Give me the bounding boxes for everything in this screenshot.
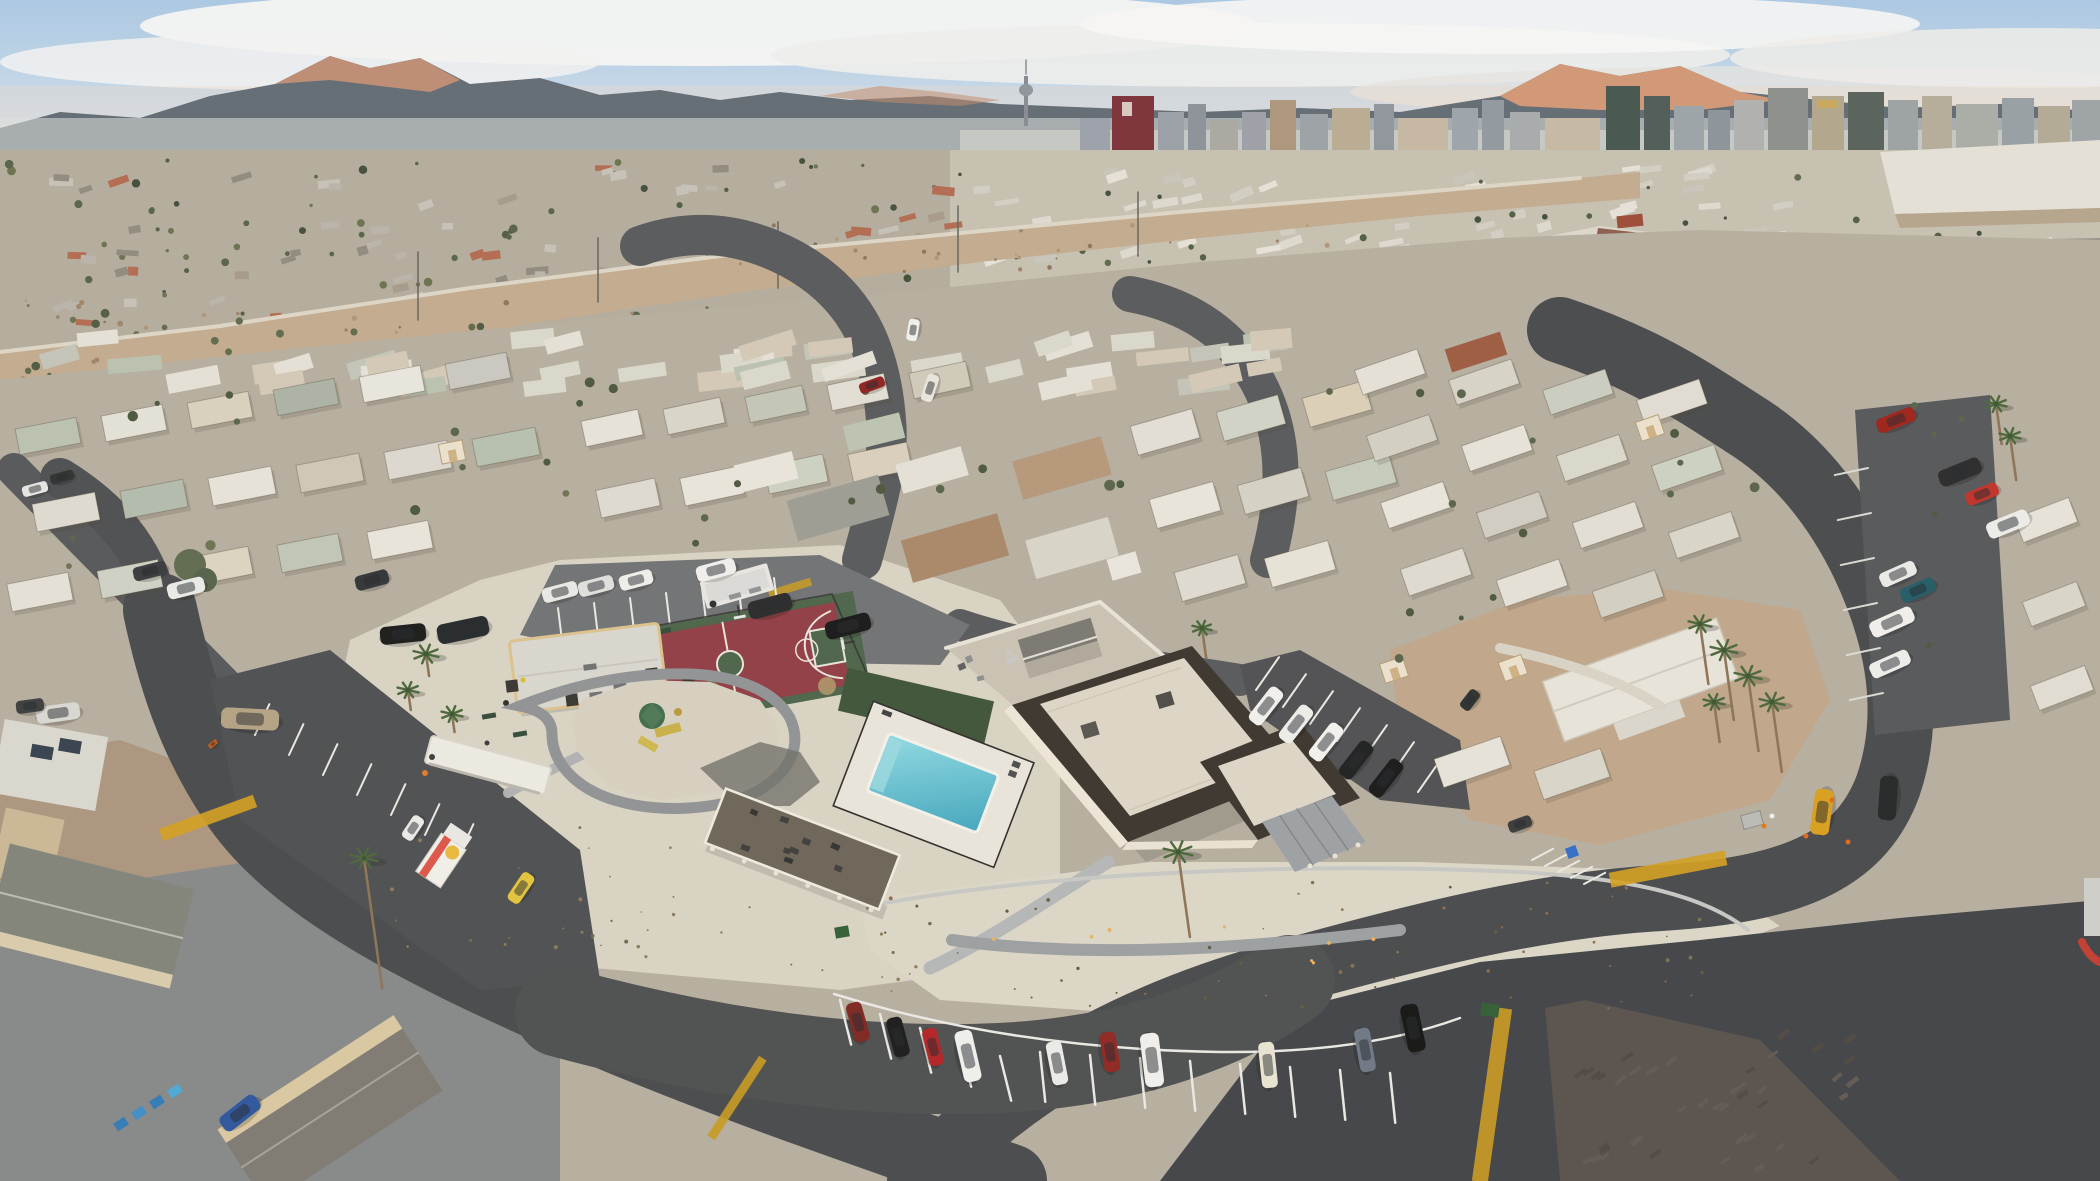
aerial-photo-canvas — [0, 0, 2100, 1181]
warm-cast — [0, 0, 2100, 1181]
aerial-photo: Aerial drone view at dusk of a mobile ho… — [0, 0, 2100, 1181]
